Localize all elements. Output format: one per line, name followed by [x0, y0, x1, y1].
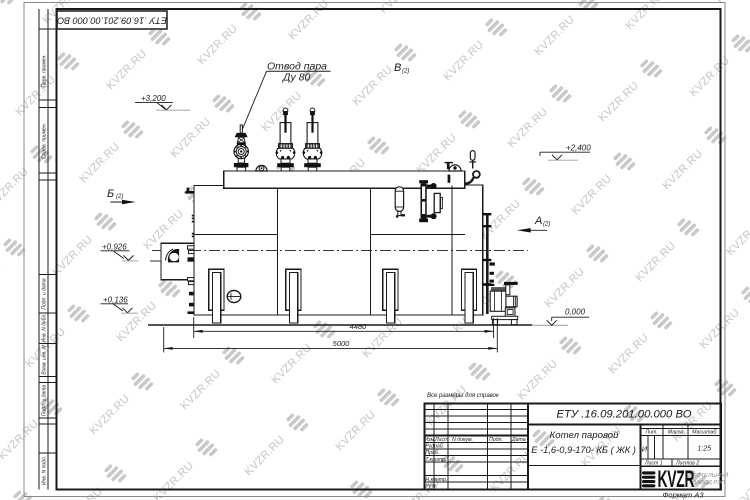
svg-text:KVZR: KVZR — [658, 466, 695, 493]
svg-text:Дата: Дата — [511, 437, 526, 443]
svg-text:Все размеры для справок: Все размеры для справок — [427, 393, 500, 399]
svg-text:1:25: 1:25 — [697, 445, 711, 452]
svg-text:(2): (2) — [543, 222, 550, 228]
svg-text:N докум.: N докум. — [452, 437, 473, 443]
svg-text:Котел паровой: Котел паровой — [550, 430, 619, 441]
svg-text:Формат А3: Формат А3 — [662, 491, 704, 500]
svg-text:КОТЕЛЬНЫЙ: КОТЕЛЬНЫЙ — [693, 471, 728, 479]
svg-text:(2): (2) — [402, 69, 409, 75]
svg-text:Масштаб: Масштаб — [692, 430, 717, 436]
svg-text:Лит.: Лит. — [645, 430, 658, 436]
svg-text:4480: 4480 — [350, 322, 368, 331]
svg-text:+3,200: +3,200 — [141, 94, 166, 103]
svg-text:Проб.: Проб. — [425, 450, 439, 456]
svg-text:Изм.: Изм. — [425, 437, 436, 443]
svg-text:+2,400: +2,400 — [566, 144, 591, 153]
svg-text:И: И — [642, 444, 648, 453]
svg-text:А: А — [534, 215, 542, 227]
svg-text:Ду 80: Ду 80 — [282, 72, 311, 84]
svg-text:5000: 5000 — [333, 339, 351, 348]
svg-text:Справ. примен.: Справ. примен. — [42, 123, 48, 159]
svg-text:Б: Б — [107, 188, 114, 200]
svg-text:ЕТУ .16.09.201.00.000 ВО: ЕТУ .16.09.201.00.000 ВО — [57, 16, 167, 26]
svg-text:0,000: 0,000 — [565, 307, 586, 316]
svg-text:Утв.: Утв. — [425, 484, 437, 490]
svg-text:В: В — [394, 62, 401, 74]
svg-text:Подп. и дата: Подп. и дата — [42, 385, 48, 417]
svg-text:Подп.: Подп. — [489, 437, 503, 443]
svg-text:+0,926: +0,926 — [102, 242, 127, 251]
svg-text:Лист: Лист — [434, 437, 449, 443]
svg-text:Т.контр.: Т.контр. — [425, 457, 446, 463]
svg-text:Подп. и дата: Подп. и дата — [42, 278, 48, 310]
svg-text:Е -1,6-0,9-170- КБ ( ЖК ): Е -1,6-0,9-170- КБ ( ЖК ) — [531, 445, 636, 455]
svg-text:Масса: Масса — [668, 430, 683, 436]
svg-text:(2): (2) — [116, 194, 123, 200]
svg-text:ЗАВОД РЭП: ЗАВОД РЭП — [693, 480, 726, 486]
svg-text:Взам. инв. N: Взам. инв. N — [42, 345, 48, 375]
svg-text:ЕТУ .16.09.201.00.000 ВО: ЕТУ .16.09.201.00.000 ВО — [556, 409, 691, 421]
svg-text:Перв. примен.: Перв. примен. — [42, 54, 48, 87]
svg-text:Инв. N подл.: Инв. N подл. — [42, 456, 48, 485]
svg-text:Разраб.: Разраб. — [425, 444, 444, 450]
svg-text:+0,136: +0,136 — [103, 295, 128, 304]
svg-text:Н.контр.: Н.контр. — [425, 477, 447, 483]
svg-text:Инв. N дубл.: Инв. N дубл. — [42, 314, 48, 343]
